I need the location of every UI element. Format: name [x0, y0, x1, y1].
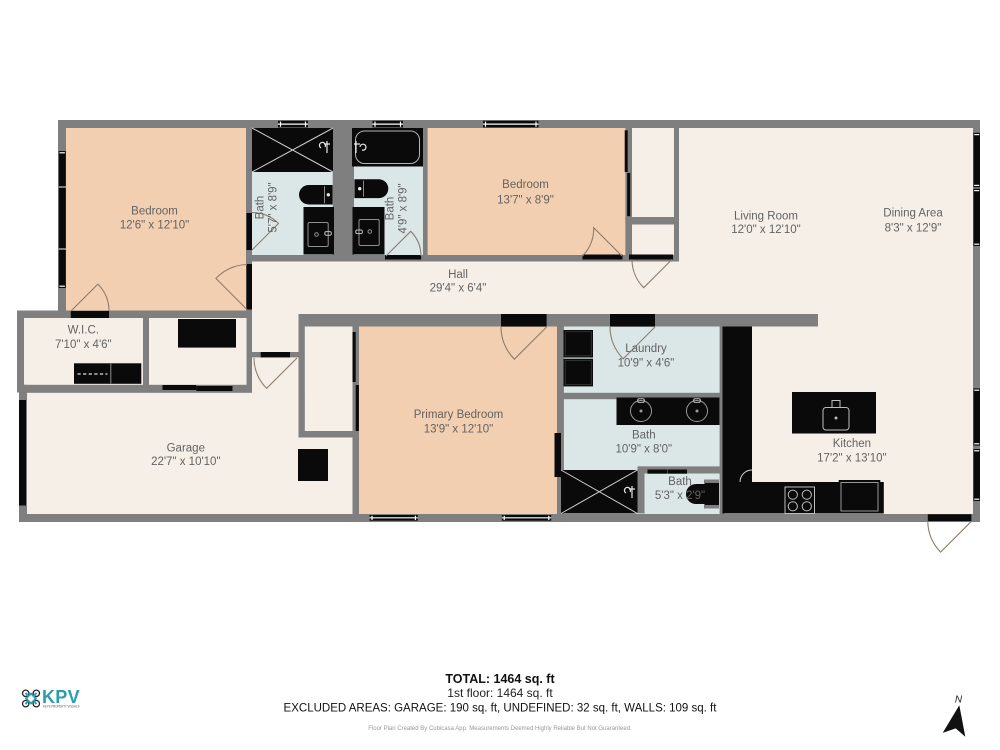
svg-text:4'9" x 8'9": 4'9" x 8'9": [398, 183, 410, 233]
svg-text:Laundry: Laundry: [625, 343, 667, 355]
svg-text:5'7" x 8'9": 5'7" x 8'9": [268, 182, 280, 232]
svg-text:8'3" x 12'9": 8'3" x 12'9": [885, 223, 942, 235]
svg-text:EXCLUDED AREAS: GARAGE: 190 sq: EXCLUDED AREAS: GARAGE: 190 sq. ft, UNDE…: [284, 703, 718, 715]
svg-text:7'10" x 4'6": 7'10" x 4'6": [55, 339, 112, 351]
svg-text:Bedroom: Bedroom: [502, 179, 549, 191]
svg-text:Kitchen: Kitchen: [833, 438, 871, 450]
svg-text:Floor Plan Created By Cubicasa: Floor Plan Created By Cubicasa App. Meas…: [368, 726, 632, 732]
svg-text:12'0" x 12'10": 12'0" x 12'10": [731, 224, 800, 236]
svg-text:TOTAL: 1464 sq. ft: TOTAL: 1464 sq. ft: [445, 672, 555, 686]
svg-text:22'7" x 10'10": 22'7" x 10'10": [151, 456, 220, 468]
svg-text:5'3" x 2'9": 5'3" x 2'9": [655, 490, 705, 502]
svg-text:13'9" x 12'10": 13'9" x 12'10": [424, 424, 493, 436]
svg-text:Garage: Garage: [167, 443, 205, 455]
svg-text:Living Room: Living Room: [734, 211, 798, 223]
svg-text:Bath: Bath: [385, 197, 397, 221]
svg-text:KEYS PROPERTY VISUALS: KEYS PROPERTY VISUALS: [43, 705, 80, 709]
svg-text:1st floor: 1464 sq. ft: 1st floor: 1464 sq. ft: [447, 686, 553, 700]
svg-text:12'6" x 12'10": 12'6" x 12'10": [120, 220, 189, 232]
svg-text:Bedroom: Bedroom: [131, 206, 178, 218]
svg-text:Bath: Bath: [255, 196, 267, 220]
svg-text:N: N: [955, 695, 963, 706]
svg-text:Bath: Bath: [668, 476, 692, 488]
svg-text:Primary Bedroom: Primary Bedroom: [414, 409, 503, 421]
svg-text:W.I.C.: W.I.C.: [68, 325, 99, 337]
svg-text:Bath: Bath: [632, 430, 656, 442]
svg-text:Dining Area: Dining Area: [883, 208, 943, 220]
svg-text:10'9" x 4'6": 10'9" x 4'6": [618, 358, 675, 370]
svg-text:17'2" x 13'10": 17'2" x 13'10": [817, 453, 886, 465]
svg-text:13'7" x 8'9": 13'7" x 8'9": [497, 194, 554, 206]
svg-text:29'4" x 6'4": 29'4" x 6'4": [430, 283, 487, 295]
svg-text:Hall: Hall: [448, 269, 468, 281]
svg-text:10'9" x 8'0": 10'9" x 8'0": [615, 444, 672, 456]
